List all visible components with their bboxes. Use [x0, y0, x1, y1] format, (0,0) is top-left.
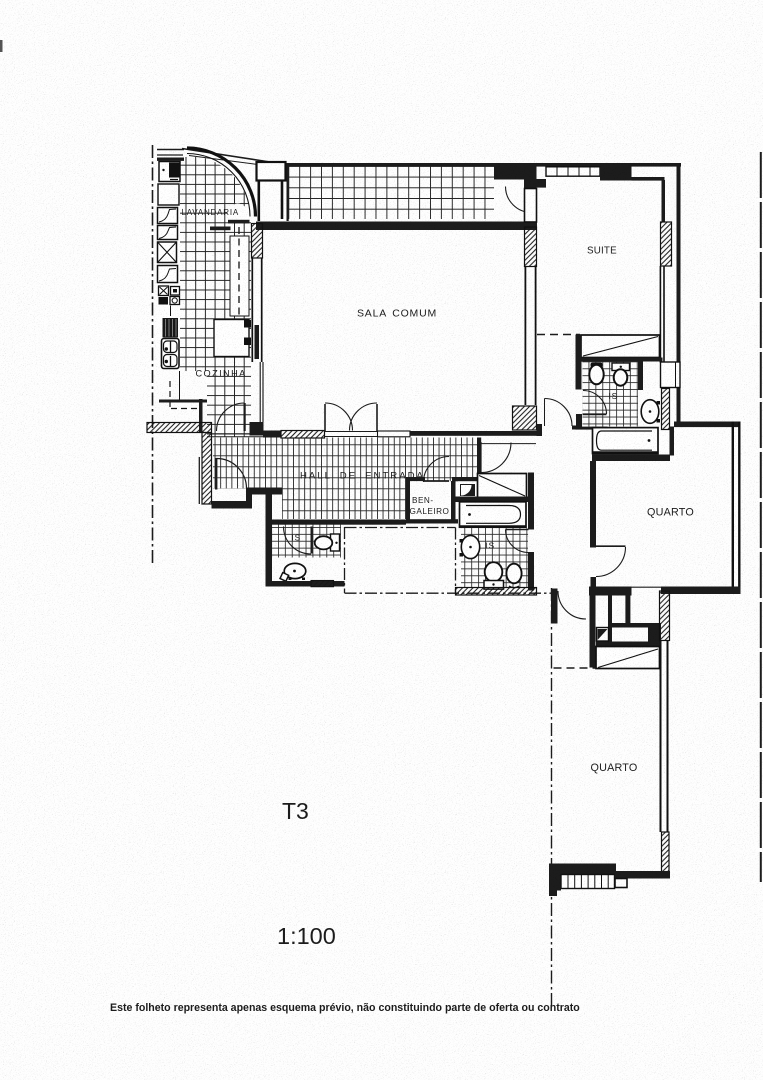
- svg-text:Este folheto representa apenas: Este folheto representa apenas esquema p…: [110, 1002, 580, 1014]
- svg-text:1:100: 1:100: [277, 923, 336, 949]
- svg-text:T3: T3: [282, 798, 309, 824]
